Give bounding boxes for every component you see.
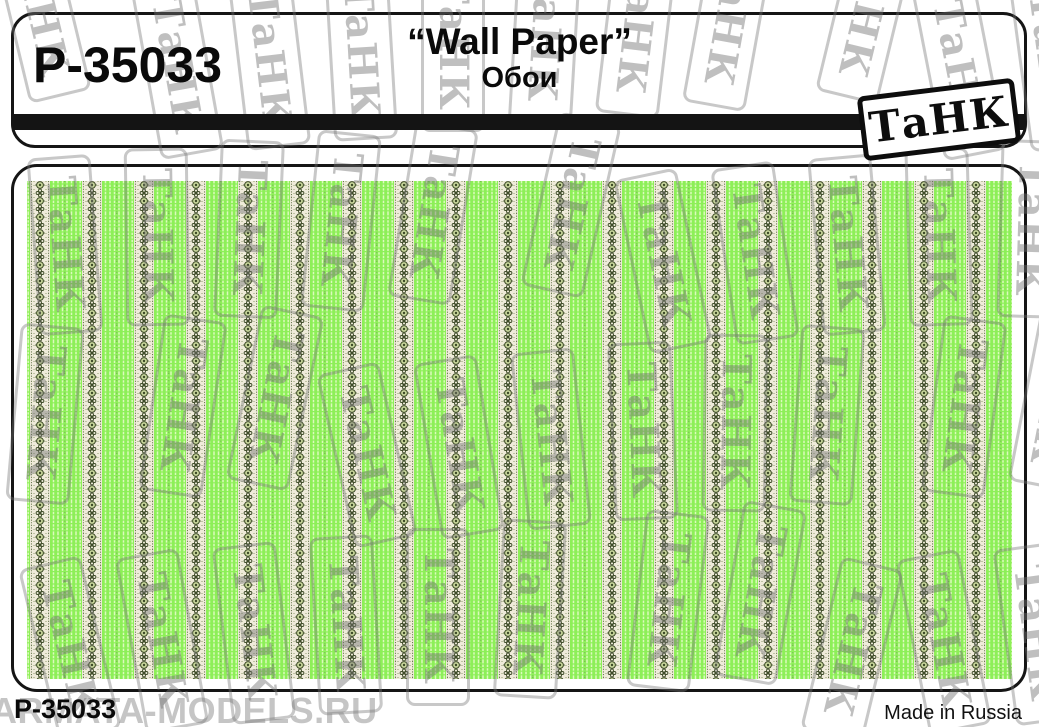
footer-product-code: P-35033: [14, 696, 116, 723]
product-subtitle: Обои: [0, 63, 1039, 95]
wallpaper-pattern: [27, 181, 1012, 679]
page-root: P-35033 “Wall Paper” Обои ТаНК: [0, 0, 1039, 727]
made-in-label: Made in Russia: [884, 703, 1022, 723]
product-title: “Wall Paper”: [0, 22, 1039, 63]
